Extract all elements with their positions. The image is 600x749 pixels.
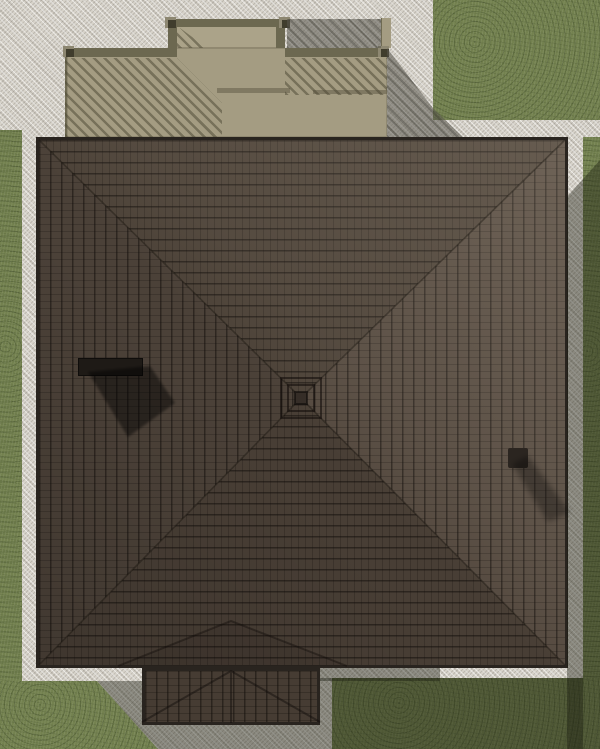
house-shadow-right xyxy=(567,160,600,749)
porch-roof xyxy=(142,668,320,725)
scene xyxy=(0,0,600,749)
chimney xyxy=(78,358,143,376)
main-roof xyxy=(36,137,568,668)
deck-rail-shadow-line xyxy=(217,88,290,93)
deck-railing-right xyxy=(285,48,387,57)
lawn-top-right xyxy=(433,0,600,120)
deck-shadow-upper xyxy=(287,19,381,48)
deck-railing-landing-top xyxy=(168,19,285,27)
house-shadow-bottom-band xyxy=(320,668,440,681)
roof-vent xyxy=(508,448,528,468)
deck-railing-left xyxy=(65,48,177,57)
deck-wall-sliver xyxy=(381,18,391,48)
deck-post xyxy=(63,46,74,57)
roof-light-wedge xyxy=(39,140,565,665)
deck-post xyxy=(165,17,176,28)
lawn-left-strip xyxy=(0,130,22,749)
deck-rail-shadow-line-right xyxy=(313,90,387,94)
